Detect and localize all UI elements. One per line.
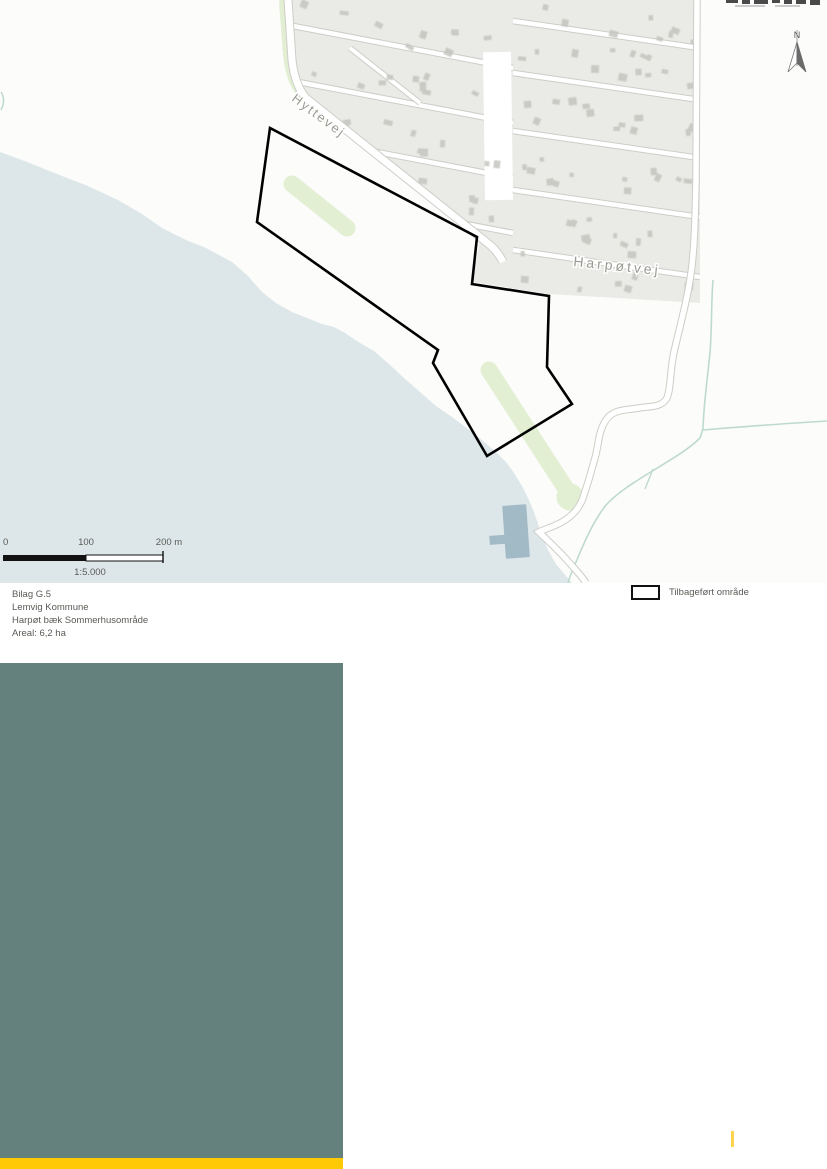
scale-tick-100: 100 <box>78 537 94 548</box>
teal-cover-block <box>0 663 343 1158</box>
caption-areal: Areal: 6,2 ha <box>12 627 148 640</box>
yellow-bottom-bar <box>0 1158 343 1169</box>
yellow-tick-mark <box>731 1131 734 1147</box>
caption-omraade: Harpøt bæk Sommerhusområde <box>12 614 148 627</box>
map-legend: Tilbageført område <box>631 585 749 600</box>
caption-block: Bilag G.5 Lemvig Kommune Harpøt bæk Somm… <box>12 588 148 640</box>
caption-bilag: Bilag G.5 <box>12 588 148 601</box>
scale-tick-200: 200 m <box>156 537 182 548</box>
legend-boundary-swatch <box>631 585 660 600</box>
map-svg: Hyttevej Harpøtvej N 0 100 200 m 1:5.000 <box>0 0 827 583</box>
map-canvas: Hyttevej Harpøtvej N 0 100 200 m 1:5.000 <box>0 0 827 583</box>
scale-tick-0: 0 <box>3 537 8 548</box>
scale-ratio: 1:5.000 <box>74 567 106 578</box>
caption-kommune: Lemvig Kommune <box>12 601 148 614</box>
legend-label: Tilbageført område <box>669 587 749 598</box>
